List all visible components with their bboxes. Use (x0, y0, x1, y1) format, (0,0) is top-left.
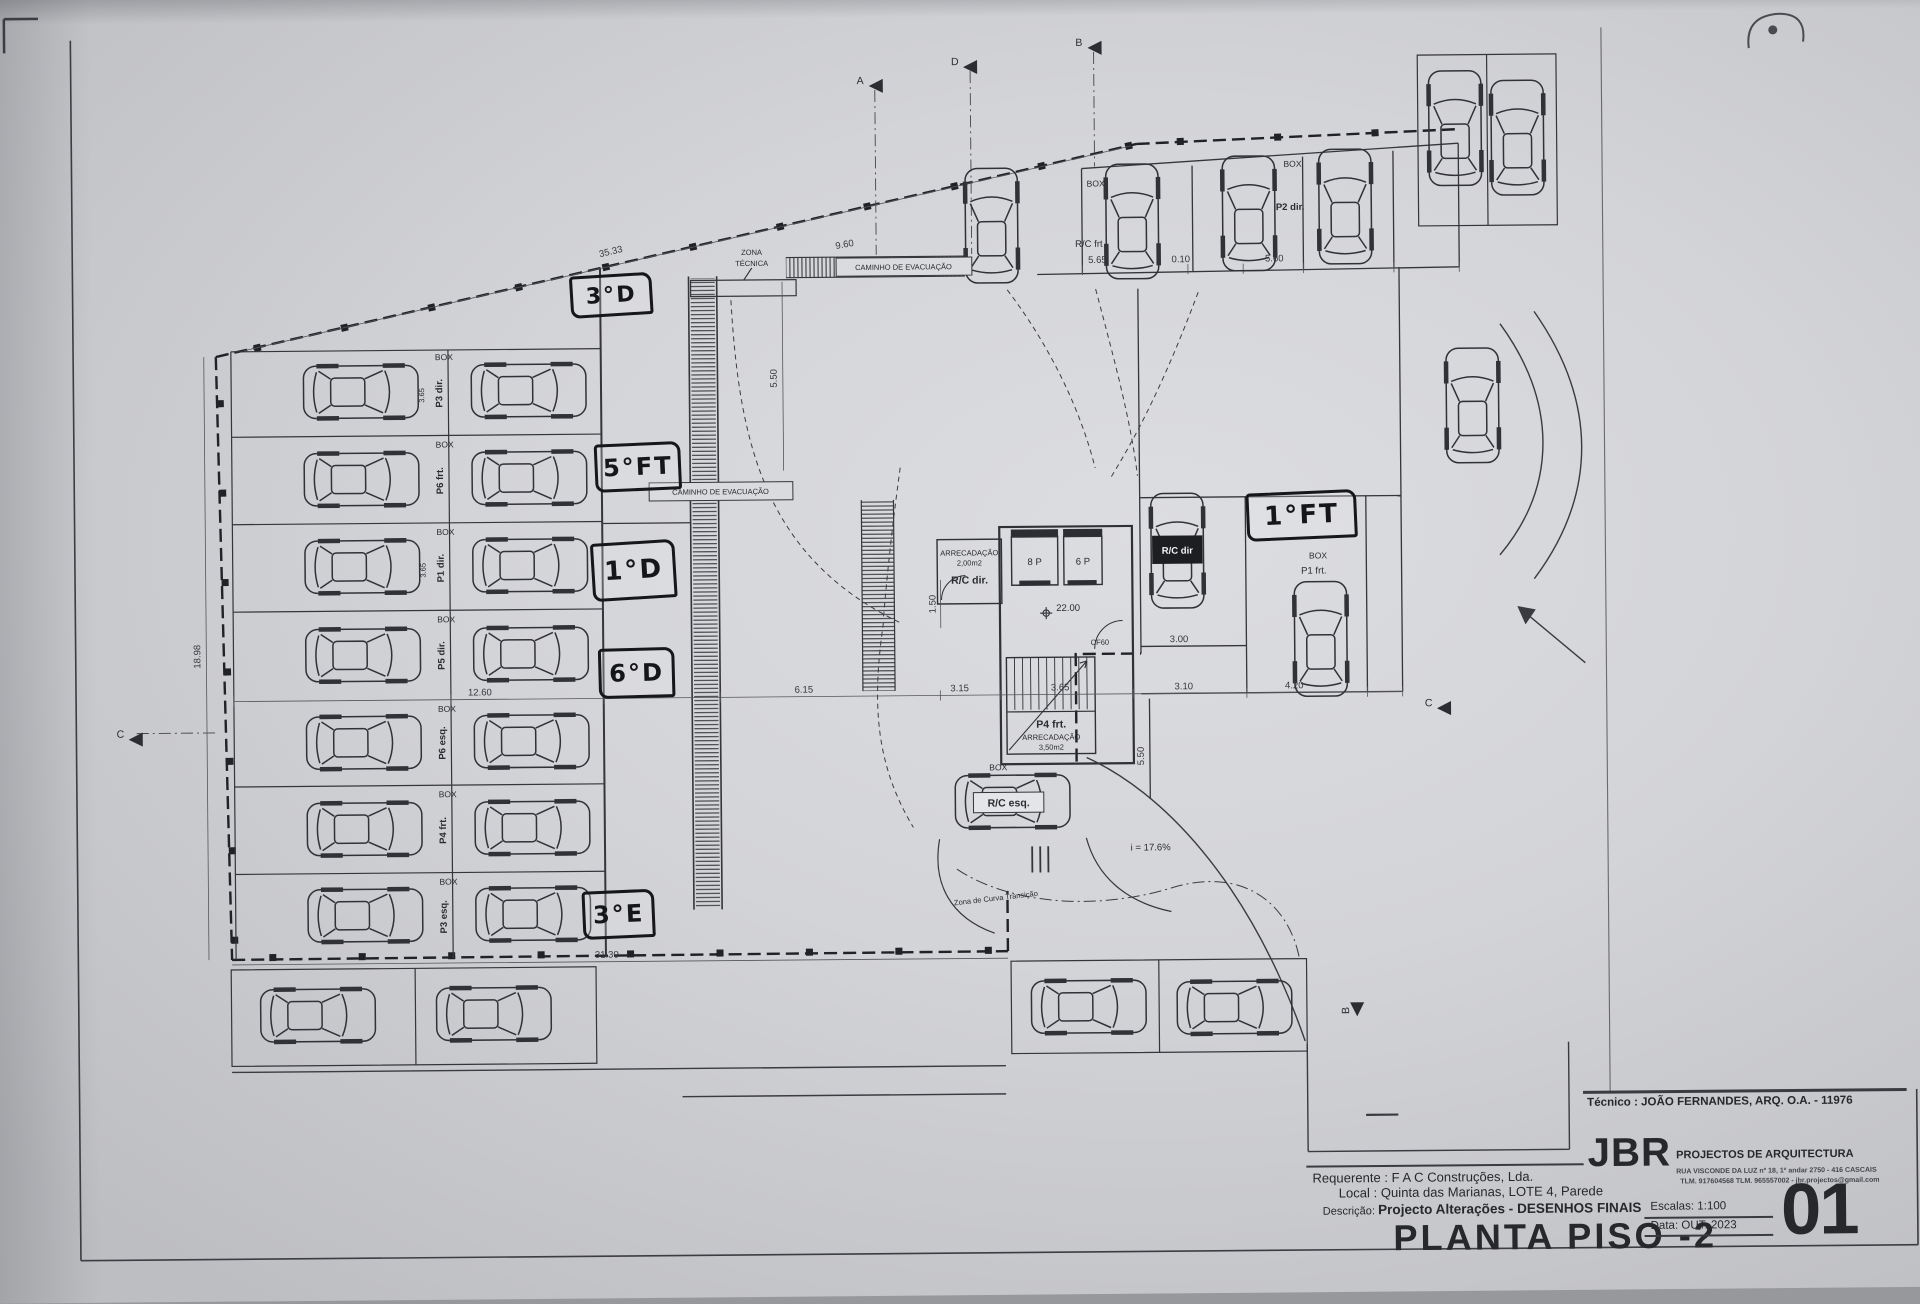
titleblock-brand-logo: JBR (1587, 1130, 1671, 1176)
level-value: 22.00 (1056, 603, 1080, 614)
unit-label-rc-dir-car: R/C dir (1162, 546, 1194, 557)
parked-cars (253, 70, 1552, 1042)
section-marker-d: D (951, 56, 959, 68)
photographed-drawing-sheet: BOX BOX BOX BOX BOX BOX BOX P3 dir. P6 f… (0, 0, 1920, 1304)
stall-label: P4 frt. (438, 817, 449, 844)
titleblock-escala-row: Escalas: 1:100 (1650, 1200, 1726, 1213)
box-label: BOX (1283, 159, 1301, 169)
car-icon (475, 801, 590, 854)
car-icon (1319, 149, 1372, 264)
store-2-area: 3,50m2 (1039, 743, 1064, 752)
car-icon (305, 540, 420, 593)
data-label: Data: (1650, 1220, 1678, 1232)
section-lines (131, 52, 1100, 734)
section-marker-b: B (1075, 37, 1082, 49)
box-label: BOX (435, 352, 453, 362)
requerente-value: F A C Construções, Lda. (1392, 1169, 1534, 1185)
stall-label: P3 esq. (439, 900, 450, 933)
store-1-area: 2,00m2 (957, 558, 982, 567)
punch-hole-mark (1748, 14, 1803, 49)
dim-420: 4.20 (1285, 680, 1304, 691)
box-label: BOX (1309, 550, 1327, 560)
stall-label: P5 dir. (436, 641, 447, 670)
car-icon (472, 451, 587, 504)
car-icon (965, 168, 1018, 283)
box-label: BOX (437, 614, 455, 624)
store-2-label: ARRECADAÇÃO (1022, 732, 1080, 742)
dim-bottom-length: 31.30 (595, 950, 619, 961)
zona-tecnica-line1: ZONA (741, 248, 762, 257)
box-label: BOX (1087, 178, 1105, 188)
caminho-evacuacao-top: CAMINHO DE EVACUAÇÃO (855, 262, 952, 272)
dim-550b: 5.50 (1136, 747, 1147, 766)
handwritten-unit-6d: 6°D (598, 647, 676, 699)
car-icon (1428, 71, 1481, 186)
car-icon (1031, 980, 1146, 1033)
unit-label-p2-dir: P2 dir. (1276, 202, 1305, 213)
car-icon (436, 987, 551, 1040)
dim-960: 9.60 (835, 238, 855, 252)
descricao-label: Descrição: (1323, 1205, 1375, 1218)
ramp-slope: i = 17.6% (1131, 842, 1172, 853)
car-icon (261, 989, 376, 1042)
dim-615: 6.15 (795, 685, 814, 696)
car-icon (1491, 80, 1544, 195)
car-icon (1294, 581, 1347, 696)
handwritten-unit-3e: 3°E (581, 889, 655, 940)
box-label: BOX (439, 789, 457, 799)
lift-2-label: 6 P (1076, 556, 1090, 567)
dim-top-length: 35.33 (598, 244, 624, 260)
dim-560: 5.60 (1265, 253, 1284, 264)
box-label: BOX (438, 704, 456, 714)
box-label: BOX (436, 439, 454, 449)
dim-565: 5.65 (1088, 255, 1107, 266)
dim-365: 3.65 (1051, 682, 1070, 693)
stall-dim: 3.65 (417, 388, 426, 403)
store-2-unit: P4 frt. (1036, 719, 1066, 731)
lift-1-label: 8 P (1027, 557, 1041, 568)
box-label: BOX (439, 877, 457, 887)
handwritten-unit-1ft: 1°FT (1245, 489, 1358, 542)
hatch-band-core-left (861, 500, 895, 691)
escala-value: 1:100 (1697, 1200, 1726, 1212)
stall-label: P3 dir. (434, 379, 445, 408)
box-label: BOX (436, 527, 454, 537)
store-1-label: ARRECADAÇÃO (940, 548, 998, 558)
car-icon (1446, 348, 1499, 463)
transition-zone-note: Zona de Curva Transição (953, 889, 1038, 907)
stall-label: P6 frt. (435, 467, 446, 494)
section-marker-a: A (857, 75, 865, 87)
local-value: Quinta das Marianas, LOTE 4, Parede (1381, 1183, 1603, 1200)
stall-dim: 3.65 (419, 563, 428, 578)
unit-label-p1-frt: P1 frt. (1301, 565, 1327, 576)
left-parking-block (230, 267, 722, 960)
dim-left-height: 18.98 (192, 645, 203, 669)
car-icon (303, 365, 418, 418)
requerente-label: Requerente : (1312, 1170, 1388, 1186)
store-1-unit: R/C dir. (951, 574, 988, 586)
data-value: OUT. 2023 (1681, 1219, 1736, 1232)
car-icon (307, 802, 422, 855)
car-icon (304, 453, 419, 506)
dim-010: 0.10 (1171, 254, 1190, 265)
door-label-cf60: CF60 (1091, 638, 1109, 647)
handwritten-unit-3d: 3°D (569, 272, 654, 319)
external-roads (226, 311, 1590, 1161)
car-icon (476, 887, 591, 940)
section-marker-c-right: C (1425, 697, 1433, 709)
section-marker-c-left: C (117, 729, 125, 741)
car-icon (306, 716, 421, 769)
car-icon (474, 715, 589, 768)
car-icon (308, 889, 423, 942)
titleblock-tecnico: Técnico : JOÃO FERNANDES, ARQ. O.A. - 11… (1587, 1095, 1853, 1109)
titleblock-brand-subtitle: PROJECTOS DE ARQUITECTURA (1676, 1148, 1854, 1162)
titleblock-local-row: Local : Quinta das Marianas, LOTE 4, Par… (1339, 1183, 1603, 1200)
hatch-band-aisle-left (691, 278, 721, 907)
unit-label-rc-esq: R/C esq. (988, 797, 1030, 809)
sheet-number: 01 (1781, 1173, 1858, 1246)
plan-texts: BOX BOX BOX BOX BOX BOX BOX P3 dir. P6 f… (111, 34, 1436, 1025)
dim-300: 3.00 (1170, 634, 1189, 645)
car-icon (306, 629, 421, 682)
dim-315: 3.15 (950, 683, 969, 694)
stall-label: P6 esq. (437, 726, 448, 759)
box-label: BOX (989, 762, 1007, 772)
stall-label: P1 dir. (436, 554, 447, 583)
caminho-evacuacao-mid: CAMINHO DE EVACUAÇÃO (672, 487, 769, 497)
escala-label: Escalas: (1650, 1200, 1694, 1212)
handwritten-unit-1d: 1°D (590, 539, 678, 602)
car-icon (1177, 981, 1292, 1034)
section-marker-b-bottom: B (1340, 1007, 1352, 1014)
zona-tecnica-line2: TÉCNICA (735, 259, 768, 268)
unit-label-rc-frt: R/C frt (1075, 239, 1103, 250)
dim-310: 3.10 (1174, 681, 1193, 692)
local-label: Local : (1339, 1185, 1378, 1200)
dim-1260: 12.60 (468, 687, 492, 698)
car-icon (473, 539, 588, 592)
dim-550a: 5.50 (769, 369, 780, 388)
handwritten-unit-5ft: 5°FT (594, 441, 682, 493)
car-icon (473, 627, 588, 680)
titleblock-data-row: Data: OUT. 2023 (1650, 1219, 1736, 1232)
car-icon (471, 364, 586, 417)
car-icon (1106, 164, 1159, 279)
dim-150: 1.50 (927, 595, 938, 614)
